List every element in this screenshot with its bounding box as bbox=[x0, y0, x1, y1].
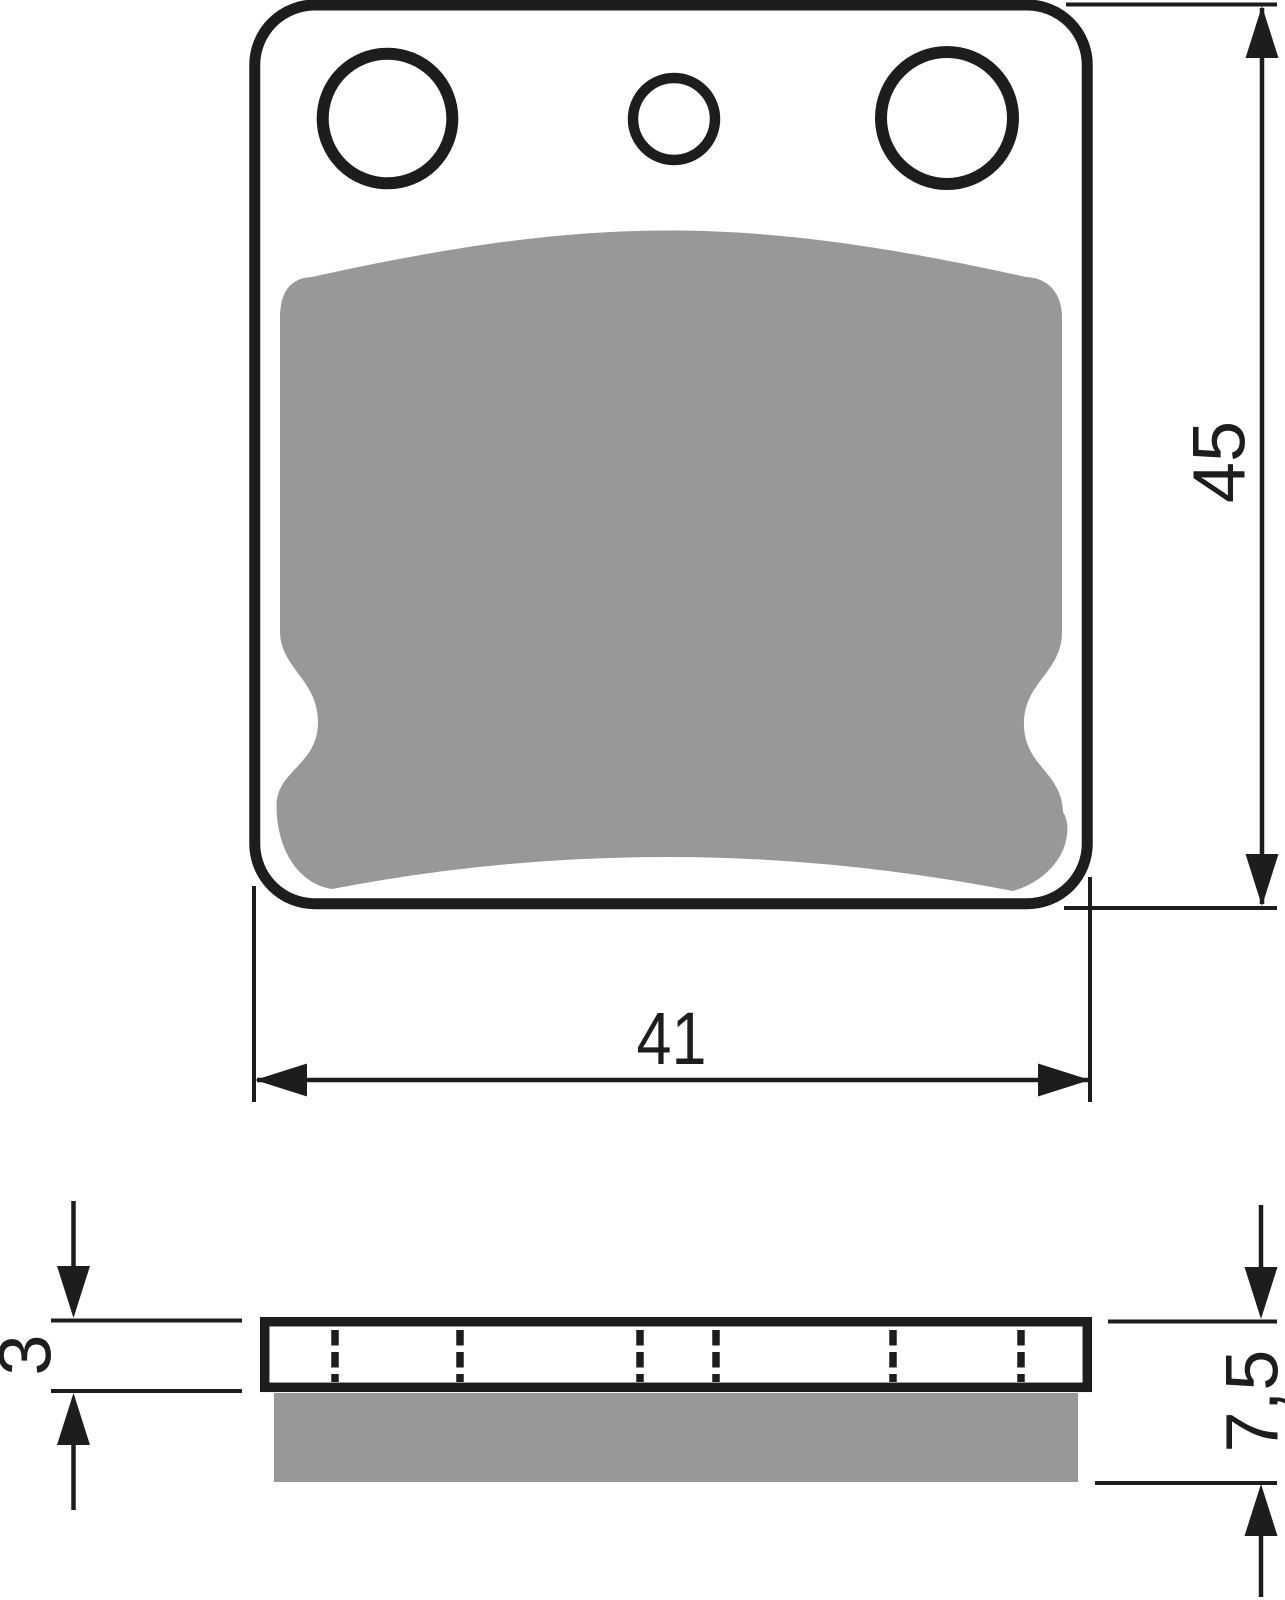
svg-text:45: 45 bbox=[1178, 421, 1261, 503]
svg-text:3: 3 bbox=[0, 1334, 67, 1375]
svg-text:7,5: 7,5 bbox=[1211, 1350, 1285, 1453]
svg-text:41: 41 bbox=[637, 997, 707, 1080]
